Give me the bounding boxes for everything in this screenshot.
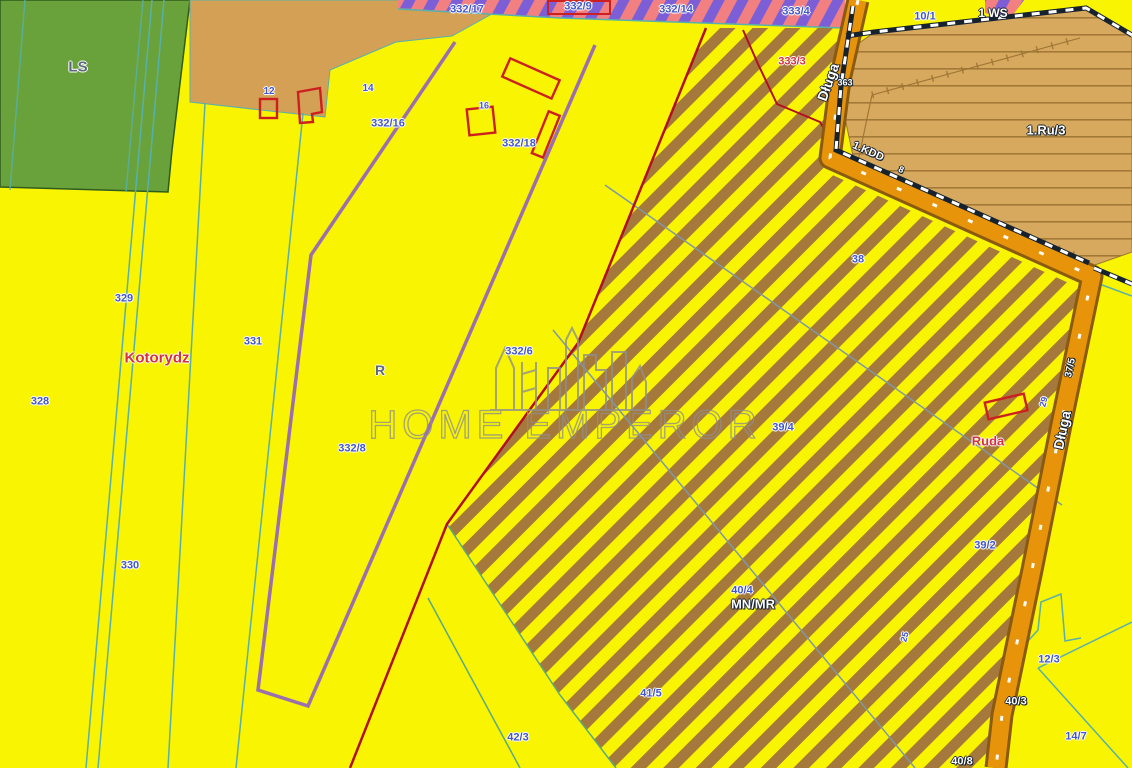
watermark-title: HOME EMPEROR — [368, 403, 761, 447]
map-viewport[interactable]: HOME EMPEROR LS332/17332/9332/14333/410/… — [0, 0, 1132, 768]
map-canvas: HOME EMPEROR — [0, 0, 1132, 768]
